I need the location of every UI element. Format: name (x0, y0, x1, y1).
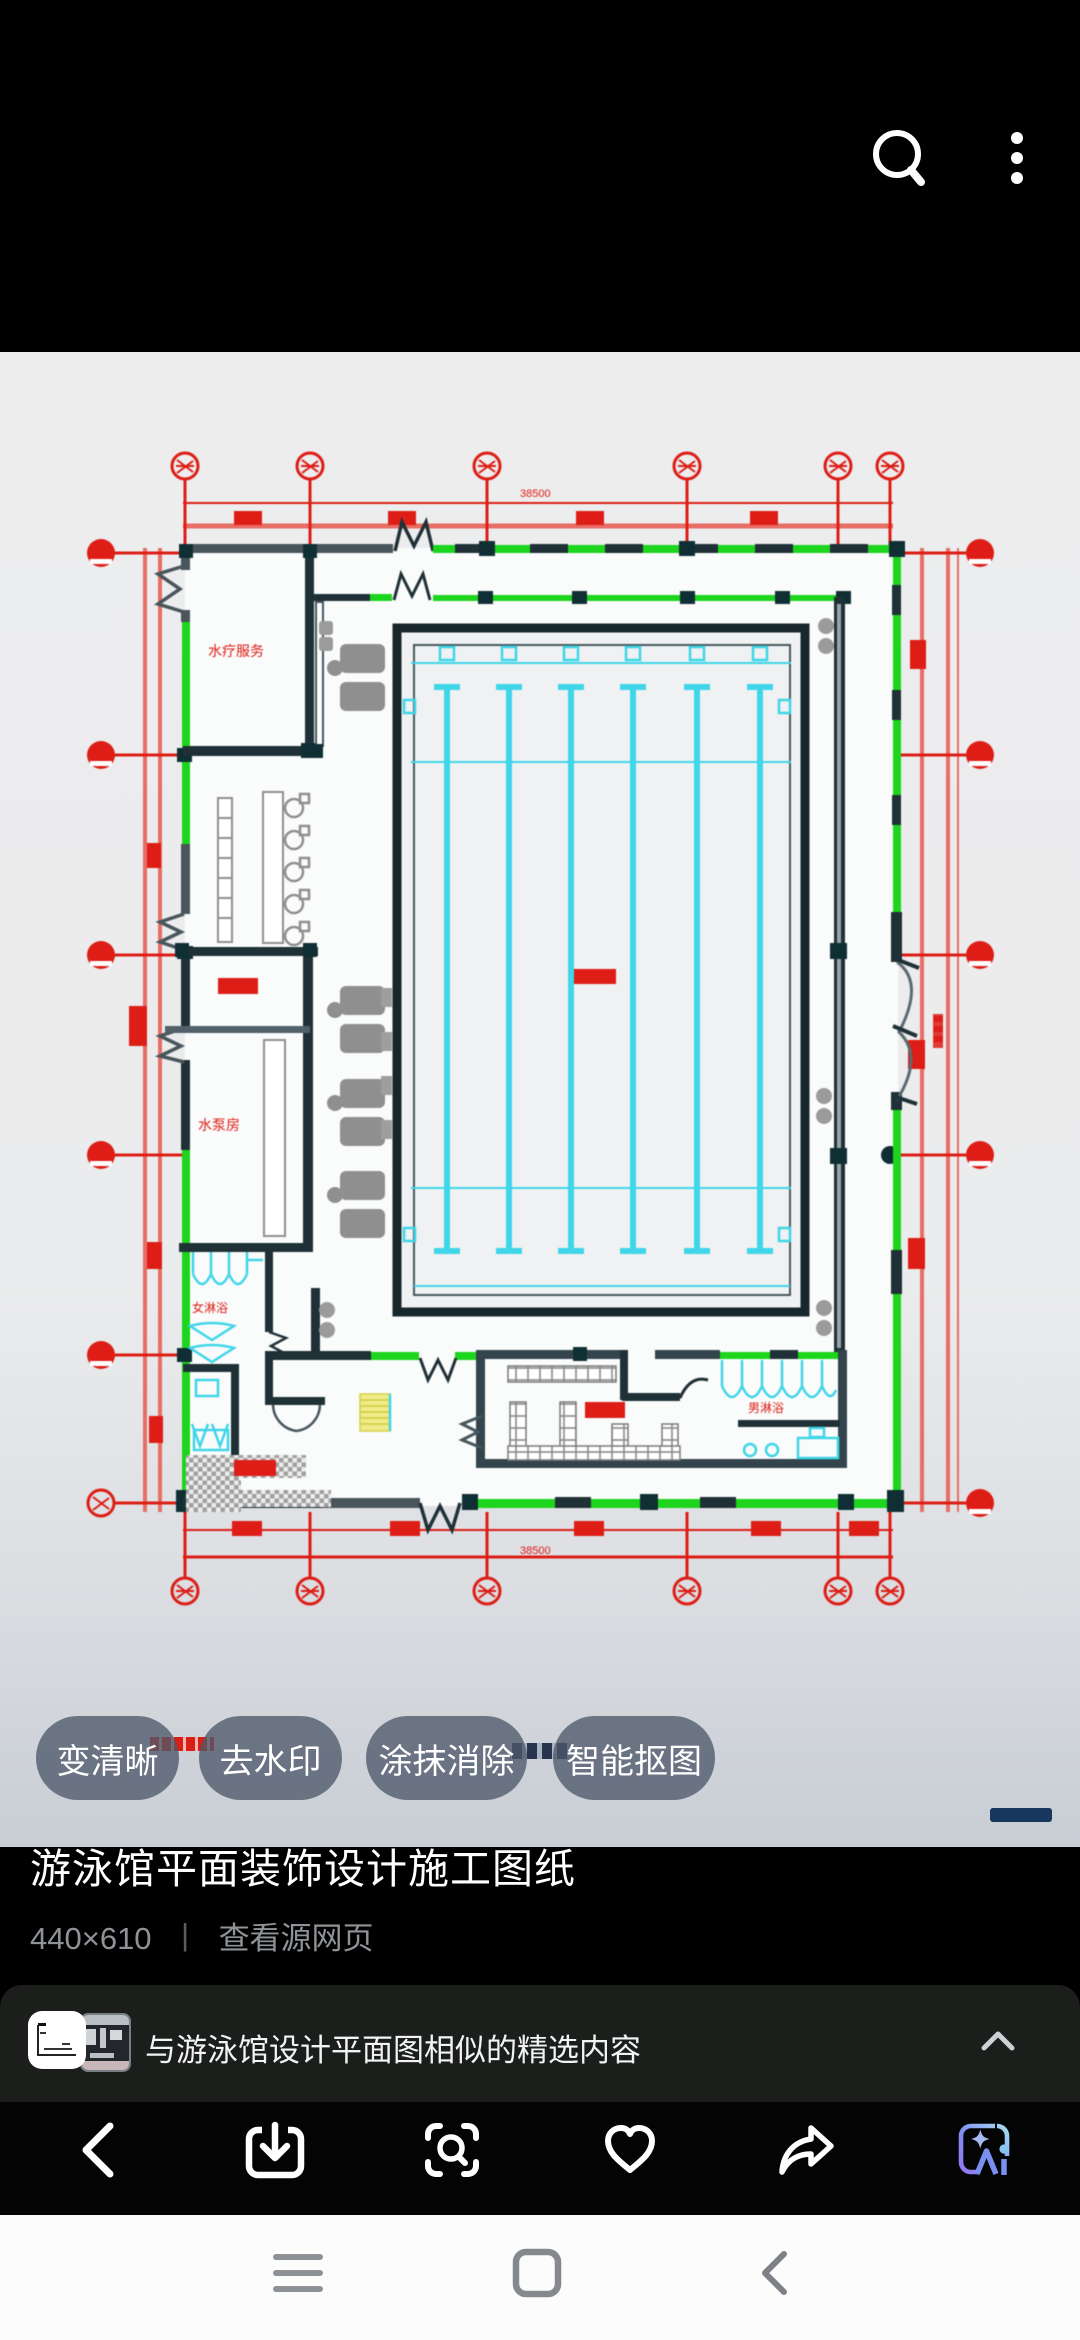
svg-text:女淋浴: 女淋浴 (192, 1300, 228, 1315)
svg-text:水疗服务: 水疗服务 (208, 643, 264, 659)
svg-text:38500: 38500 (520, 488, 551, 500)
svg-text:38500: 38500 (520, 1545, 551, 1557)
svg-text:男淋浴: 男淋浴 (748, 1401, 784, 1415)
svg-text:水泵房: 水泵房 (198, 1117, 240, 1133)
